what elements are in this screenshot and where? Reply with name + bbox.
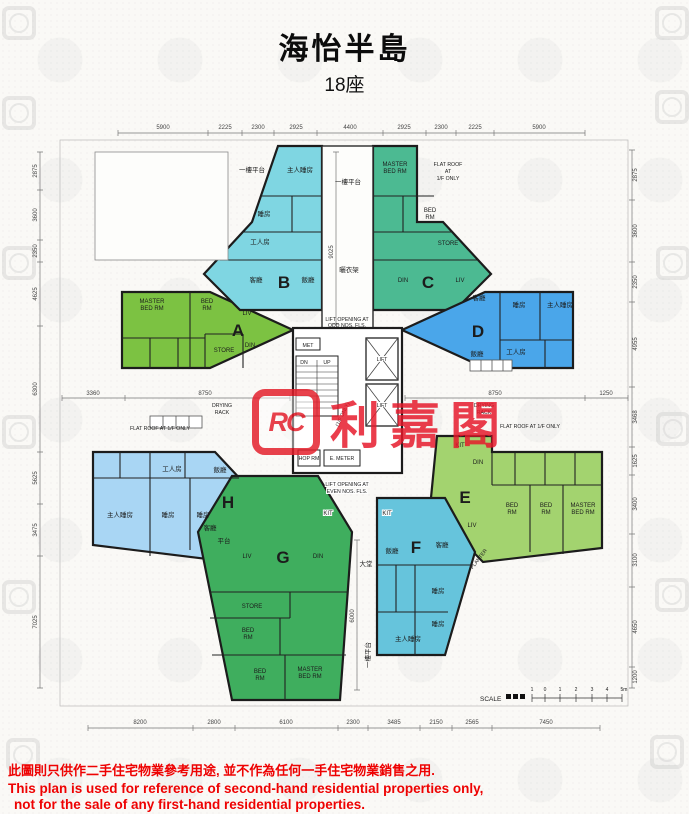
hopper-room-label: HOP RM — [299, 456, 320, 462]
room-d-bed: 睡房 — [513, 300, 526, 309]
room-e-kit: KIT — [455, 443, 465, 449]
flat-roof-bottom-right-label: FLAT ROOF AT 1/F ONLY — [500, 424, 561, 430]
room-e-bed1-1: BED — [506, 503, 519, 509]
scale-ruler — [532, 694, 622, 702]
dim-label: 2565 — [465, 720, 479, 726]
dim-label: 2875 — [33, 164, 39, 178]
room-g-bed2-1: BED — [254, 669, 267, 675]
unit-e-letter: E — [459, 488, 470, 507]
room-g-store: STORE — [242, 604, 263, 610]
scale-label: SCALE — [480, 696, 502, 703]
room-c-master-1: MASTER — [382, 162, 408, 168]
podium-bottom-label: 一樓平台 — [363, 642, 372, 668]
room-a-master-2: BED RM — [140, 306, 163, 312]
room-e-master-2: BED RM — [571, 510, 594, 516]
scale-mark: 1 — [559, 687, 562, 693]
disclaimer-english-line2: not for the sale of any first-hand resid… — [8, 797, 483, 813]
lift-1-label: LIFT — [377, 357, 388, 363]
unit-d-letter: D — [472, 322, 484, 341]
dim-label-3360: 3360 — [86, 391, 100, 397]
dim-label: 6300 — [33, 382, 39, 396]
room-g-liv: LIV — [242, 554, 251, 560]
room-b-master: 主人睡房 — [287, 165, 313, 174]
scale-block — [506, 694, 511, 699]
dim-label: 4625 — [33, 287, 39, 301]
room-a-bed-1: BED — [201, 299, 214, 305]
dim-label: 2925 — [397, 125, 411, 131]
room-a-din: DIN — [245, 343, 255, 349]
room-e-liv: LIV — [467, 523, 476, 529]
room-a-store: STORE — [214, 348, 235, 354]
room-h-dining: 飯廳 — [214, 465, 228, 474]
room-a-liv: LIV — [242, 311, 251, 317]
dim-label: 5900 — [532, 125, 546, 131]
room-g-din: DIN — [313, 554, 323, 560]
room-h-maid: 工人房 — [162, 464, 182, 473]
room-e-bed2-1: BED — [540, 503, 553, 509]
dim-label: 1625 — [633, 454, 639, 468]
room-d-maid: 工人房 — [506, 347, 526, 356]
room-f-master: 主人睡房 — [395, 634, 421, 643]
room-a-bed-2: RM — [202, 306, 211, 312]
scale-mark: 3 — [591, 687, 594, 693]
room-h-terrace: 平台 — [218, 536, 231, 545]
dim-label: 7025 — [33, 615, 39, 629]
lift-opening-odd-line2: ODD NOS. FLS. — [328, 323, 366, 329]
dim-label: 6100 — [279, 720, 293, 726]
flat-roof-tr-line3: 1/F ONLY — [437, 176, 460, 182]
room-c-bed-2: RM — [425, 215, 434, 221]
flat-roof-tr-line2: AT — [445, 169, 452, 175]
scale-mark: 1 — [531, 687, 534, 693]
dim-labels-right: 2875 3600 2350 4955 3468 1625 3400 3100 … — [633, 168, 639, 684]
floor-plan-drawing: 5900 2225 2300 2925 4400 2925 2300 2225 … — [0, 0, 689, 814]
dim-label-9025: 9025 — [329, 245, 335, 259]
room-g-master-2: BED RM — [298, 674, 321, 680]
dim-label: 5625 — [33, 471, 39, 485]
dim-label: 2225 — [218, 125, 232, 131]
scale-bar: SCALE 1 0 1 2 3 4 5m — [480, 687, 627, 703]
dim-labels-bottom: 8200 2800 6100 2300 3485 2150 2565 7450 — [133, 720, 553, 726]
dim-label: 2925 — [289, 125, 303, 131]
core — [293, 328, 402, 473]
scale-block — [513, 694, 518, 699]
drying-rack-right-line2: RACK — [477, 410, 492, 416]
drying-rack-cn-label: 曬衣架 — [339, 265, 359, 274]
dim-label: 4955 — [633, 337, 639, 351]
unit-b-letter: B — [278, 273, 290, 292]
dim-label: 3468 — [633, 410, 639, 424]
stairs-dn-label: DN — [300, 360, 308, 366]
room-g-bed1-1: BED — [242, 628, 255, 634]
room-g-bed2-2: RM — [255, 676, 264, 682]
stairs-up-label: UP — [323, 360, 331, 366]
dim-labels-left: 2875 3600 2350 4625 6300 5625 3475 7025 — [33, 164, 39, 629]
room-h-bed2: 睡房 — [197, 510, 210, 519]
disclaimer: 此圖則只供作二手住宅物業參考用途, 並不作為任何一手住宅物業銷售之用. This… — [8, 760, 483, 813]
podium-top-left-label: 一樓平台 — [239, 165, 265, 174]
podium-top-left — [95, 152, 228, 260]
dim-label: 2225 — [468, 125, 482, 131]
room-h-living: 客廳 — [204, 523, 218, 532]
disclaimer-english-line1: This plan is used for reference of secon… — [8, 781, 483, 797]
room-f-kit: KIT — [382, 511, 392, 517]
dim-label: 3475 — [33, 523, 39, 537]
room-g-kit: KIT — [323, 511, 333, 517]
podium-top-center-label: 一樓平台 — [335, 177, 361, 186]
room-e-master-1: MASTER — [570, 503, 596, 509]
room-e-din: DIN — [473, 460, 483, 466]
dim-label: 5900 — [156, 125, 170, 131]
room-c-store: STORE — [438, 241, 459, 247]
dim-label: 4400 — [343, 125, 357, 131]
dim-label: 2350 — [33, 244, 39, 258]
floor-plan-page: { "title": "海怡半島", "subtitle": "18座", "w… — [0, 0, 689, 814]
room-c-din: DIN — [398, 278, 408, 284]
dim-label-8750-left: 8750 — [198, 391, 212, 397]
dim-label-8750-right: 8750 — [488, 391, 502, 397]
disclaimer-chinese: 此圖則只供作二手住宅物業參考用途, 並不作為任何一手住宅物業銷售之用. — [8, 760, 483, 779]
room-g-bed1-2: RM — [243, 635, 252, 641]
room-b-bed: 睡房 — [258, 209, 271, 218]
drying-rack-right-line1: DRYING — [474, 403, 494, 409]
scale-mark: 5m — [621, 687, 628, 693]
room-c-bed-1: BED — [424, 208, 437, 214]
dim-line-mid-right — [405, 395, 628, 401]
room-d-living: 客廳 — [473, 293, 487, 302]
room-h-master: 主人睡房 — [107, 510, 133, 519]
room-f-bed1: 睡房 — [432, 586, 445, 595]
unit-a-letter: A — [232, 321, 244, 340]
scale-mark: 0 — [544, 687, 547, 693]
dim-label: 3400 — [633, 497, 639, 511]
dim-label-6000: 6000 — [350, 609, 356, 623]
dim-line-left — [37, 152, 43, 688]
lift-2-label: LIFT — [377, 403, 388, 409]
dim-label: 2350 — [633, 275, 639, 289]
unit-c-letter: C — [422, 273, 434, 292]
e-meter-label: E. METER — [330, 456, 355, 462]
room-e-bed2-2: RM — [541, 510, 550, 516]
dim-label: 2300 — [251, 125, 265, 131]
lift-opening-even-line2: EVEN NOS. FLS. — [327, 489, 368, 495]
room-f-dining: 飯廳 — [386, 546, 400, 555]
scale-mark: 2 — [575, 687, 578, 693]
room-b-maid: 工人房 — [250, 237, 270, 246]
dim-label: 4650 — [633, 620, 639, 634]
unit-f-letter: F — [411, 538, 421, 557]
dim-line-bottom — [88, 725, 600, 731]
scale-mark: 4 — [606, 687, 609, 693]
dim-label: 2300 — [346, 720, 360, 726]
room-h-bed1: 睡房 — [162, 510, 175, 519]
dim-label: 2800 — [207, 720, 221, 726]
dim-label: 2150 — [429, 720, 443, 726]
room-b-dining: 飯廳 — [302, 275, 316, 284]
flat-roof-left-label: FLAT ROOF AT 1/F ONLY — [130, 426, 191, 432]
unit-h-letter: H — [222, 493, 234, 512]
dim-label: 8200 — [133, 720, 147, 726]
lift-opening-even-line1: LIFT OPENING AT — [325, 482, 369, 488]
dim-label: 7450 — [539, 720, 553, 726]
drying-rack-left-line2: RACK — [215, 410, 230, 416]
drying-rack-left-line1: DRYING — [212, 403, 232, 409]
dim-label: 3485 — [387, 720, 401, 726]
dim-label: 3600 — [633, 224, 639, 238]
room-f-living: 客廳 — [436, 540, 450, 549]
dim-label: 1200 — [633, 670, 639, 684]
unit-g-letter: G — [276, 548, 289, 567]
room-e-bed1-2: RM — [507, 510, 516, 516]
scale-marks: 1 0 1 2 3 4 5m — [531, 687, 628, 693]
room-c-master-2: BED RM — [383, 169, 406, 175]
room-a-master-1: MASTER — [139, 299, 165, 305]
podium-top-center — [322, 146, 373, 328]
lobby-label: 大堂 — [360, 559, 374, 568]
room-g-master-1: MASTER — [297, 667, 323, 673]
drying-rack-right-symbol — [470, 360, 512, 371]
room-f-bed2: 睡房 — [432, 619, 445, 628]
dim-label: 3100 — [633, 553, 639, 567]
scale-block — [520, 694, 525, 699]
dim-label: 2300 — [434, 125, 448, 131]
room-d-master: 主人睡房 — [547, 300, 573, 309]
dim-label: 2875 — [633, 168, 639, 182]
met-label: MET — [303, 343, 315, 349]
room-b-living: 客廳 — [250, 275, 264, 284]
room-c-liv: LIV — [455, 278, 464, 284]
dim-labels-top: 5900 2225 2300 2925 4400 2925 2300 2225 … — [156, 125, 546, 131]
room-d-dining: 飯廳 — [471, 349, 485, 358]
dim-label: 3600 — [33, 208, 39, 222]
dim-label-1250: 1250 — [599, 391, 613, 397]
flat-roof-tr-line1: FLAT ROOF — [434, 162, 463, 168]
